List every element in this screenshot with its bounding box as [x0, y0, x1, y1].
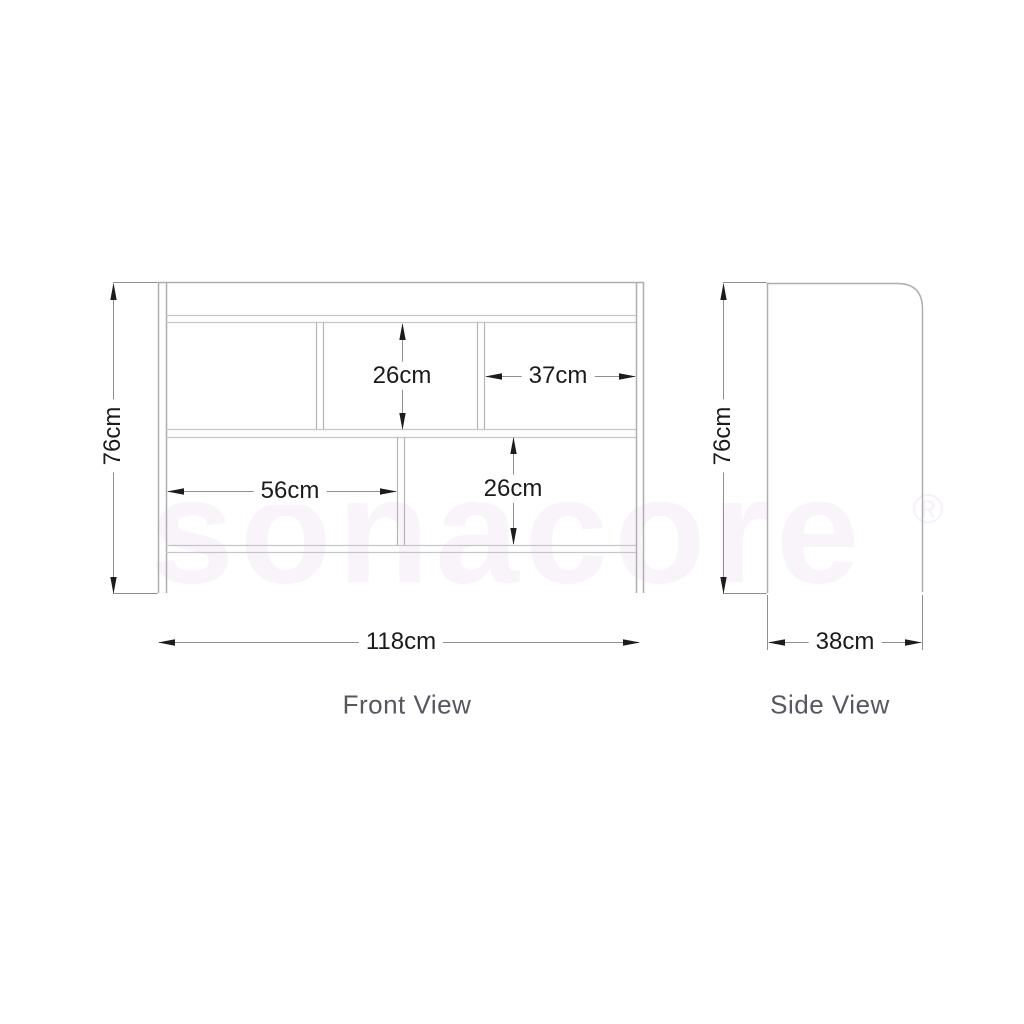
side-view-drawing	[767, 283, 923, 593]
shelf-line-drawing	[0, 0, 1024, 1024]
dimension-label-lower-left-width: 56cm	[254, 477, 327, 505]
dimension-label-lower-compartment-height: 26cm	[477, 475, 550, 503]
dimension-label-side-height: 76cm	[709, 400, 737, 473]
dimension-label-upper-right-width: 37cm	[522, 362, 595, 390]
dimension-label-upper-compartment-height: 26cm	[366, 362, 439, 390]
side-view-title: Side View	[770, 690, 890, 721]
dimension-lines	[113, 283, 923, 651]
dimension-label-front-height: 76cm	[99, 400, 127, 473]
dimension-label-side-depth: 38cm	[809, 628, 882, 656]
dimension-arrowheads	[110, 283, 922, 646]
technical-drawing-canvas: sonacore ®	[0, 0, 1024, 1024]
front-view-dividers	[317, 322, 485, 545]
front-view-shelves	[166, 316, 636, 553]
front-view-title: Front View	[343, 690, 472, 721]
dimension-label-front-width: 118cm	[359, 628, 443, 656]
